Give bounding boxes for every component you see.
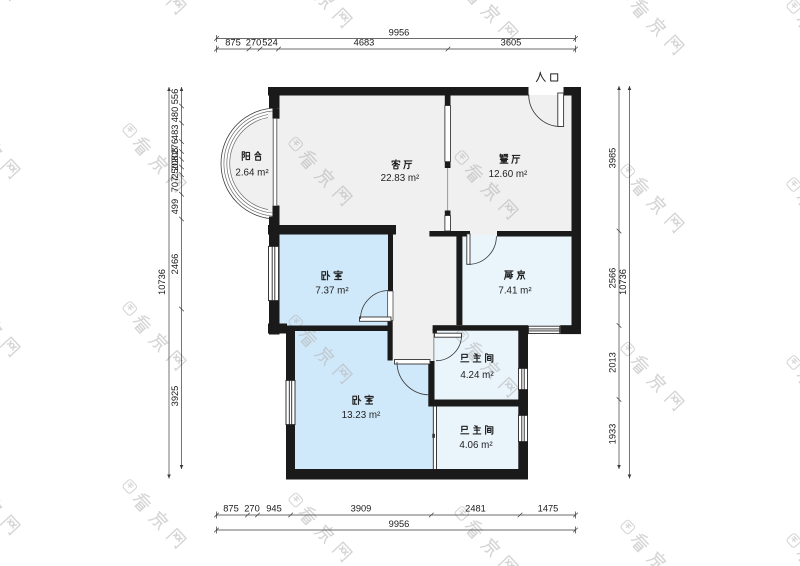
svg-text:4683: 4683 xyxy=(354,38,375,48)
svg-text:707: 707 xyxy=(170,177,180,193)
svg-text:3605: 3605 xyxy=(501,38,522,48)
svg-text:2013: 2013 xyxy=(608,352,618,373)
svg-text:499: 499 xyxy=(170,199,180,215)
svg-text:10736: 10736 xyxy=(157,269,167,295)
svg-text:270: 270 xyxy=(244,504,260,514)
svg-text:7.41 m²: 7.41 m² xyxy=(498,286,532,297)
svg-text:875: 875 xyxy=(225,38,241,48)
svg-text:22.83 m²: 22.83 m² xyxy=(381,173,420,184)
svg-text:250: 250 xyxy=(170,163,180,179)
svg-text:3985: 3985 xyxy=(608,148,618,169)
svg-text:875: 875 xyxy=(223,504,239,514)
svg-text:13.23 m²: 13.23 m² xyxy=(342,410,381,421)
svg-text:945: 945 xyxy=(266,504,282,514)
svg-text:1475: 1475 xyxy=(538,504,559,514)
svg-text:483: 483 xyxy=(170,125,180,141)
svg-text:524: 524 xyxy=(262,38,278,48)
svg-text:7.37 m²: 7.37 m² xyxy=(315,286,349,297)
svg-text:3909: 3909 xyxy=(351,504,372,514)
svg-text:480: 480 xyxy=(170,107,180,123)
svg-text:4.06 m²: 4.06 m² xyxy=(459,440,493,451)
svg-text:556: 556 xyxy=(170,89,180,105)
svg-text:2.64 m²: 2.64 m² xyxy=(235,168,269,179)
svg-text:1933: 1933 xyxy=(608,424,618,445)
svg-text:10736: 10736 xyxy=(618,269,628,295)
svg-text:2566: 2566 xyxy=(608,268,618,289)
svg-text:9956: 9956 xyxy=(389,28,410,38)
svg-text:2481: 2481 xyxy=(465,504,486,514)
svg-text:9956: 9956 xyxy=(389,519,410,529)
svg-text:4.24 m²: 4.24 m² xyxy=(460,370,494,381)
svg-text:2466: 2466 xyxy=(170,254,180,275)
svg-text:3925: 3925 xyxy=(170,386,180,407)
svg-text:270: 270 xyxy=(246,38,262,48)
svg-text:12.60 m²: 12.60 m² xyxy=(489,169,528,180)
